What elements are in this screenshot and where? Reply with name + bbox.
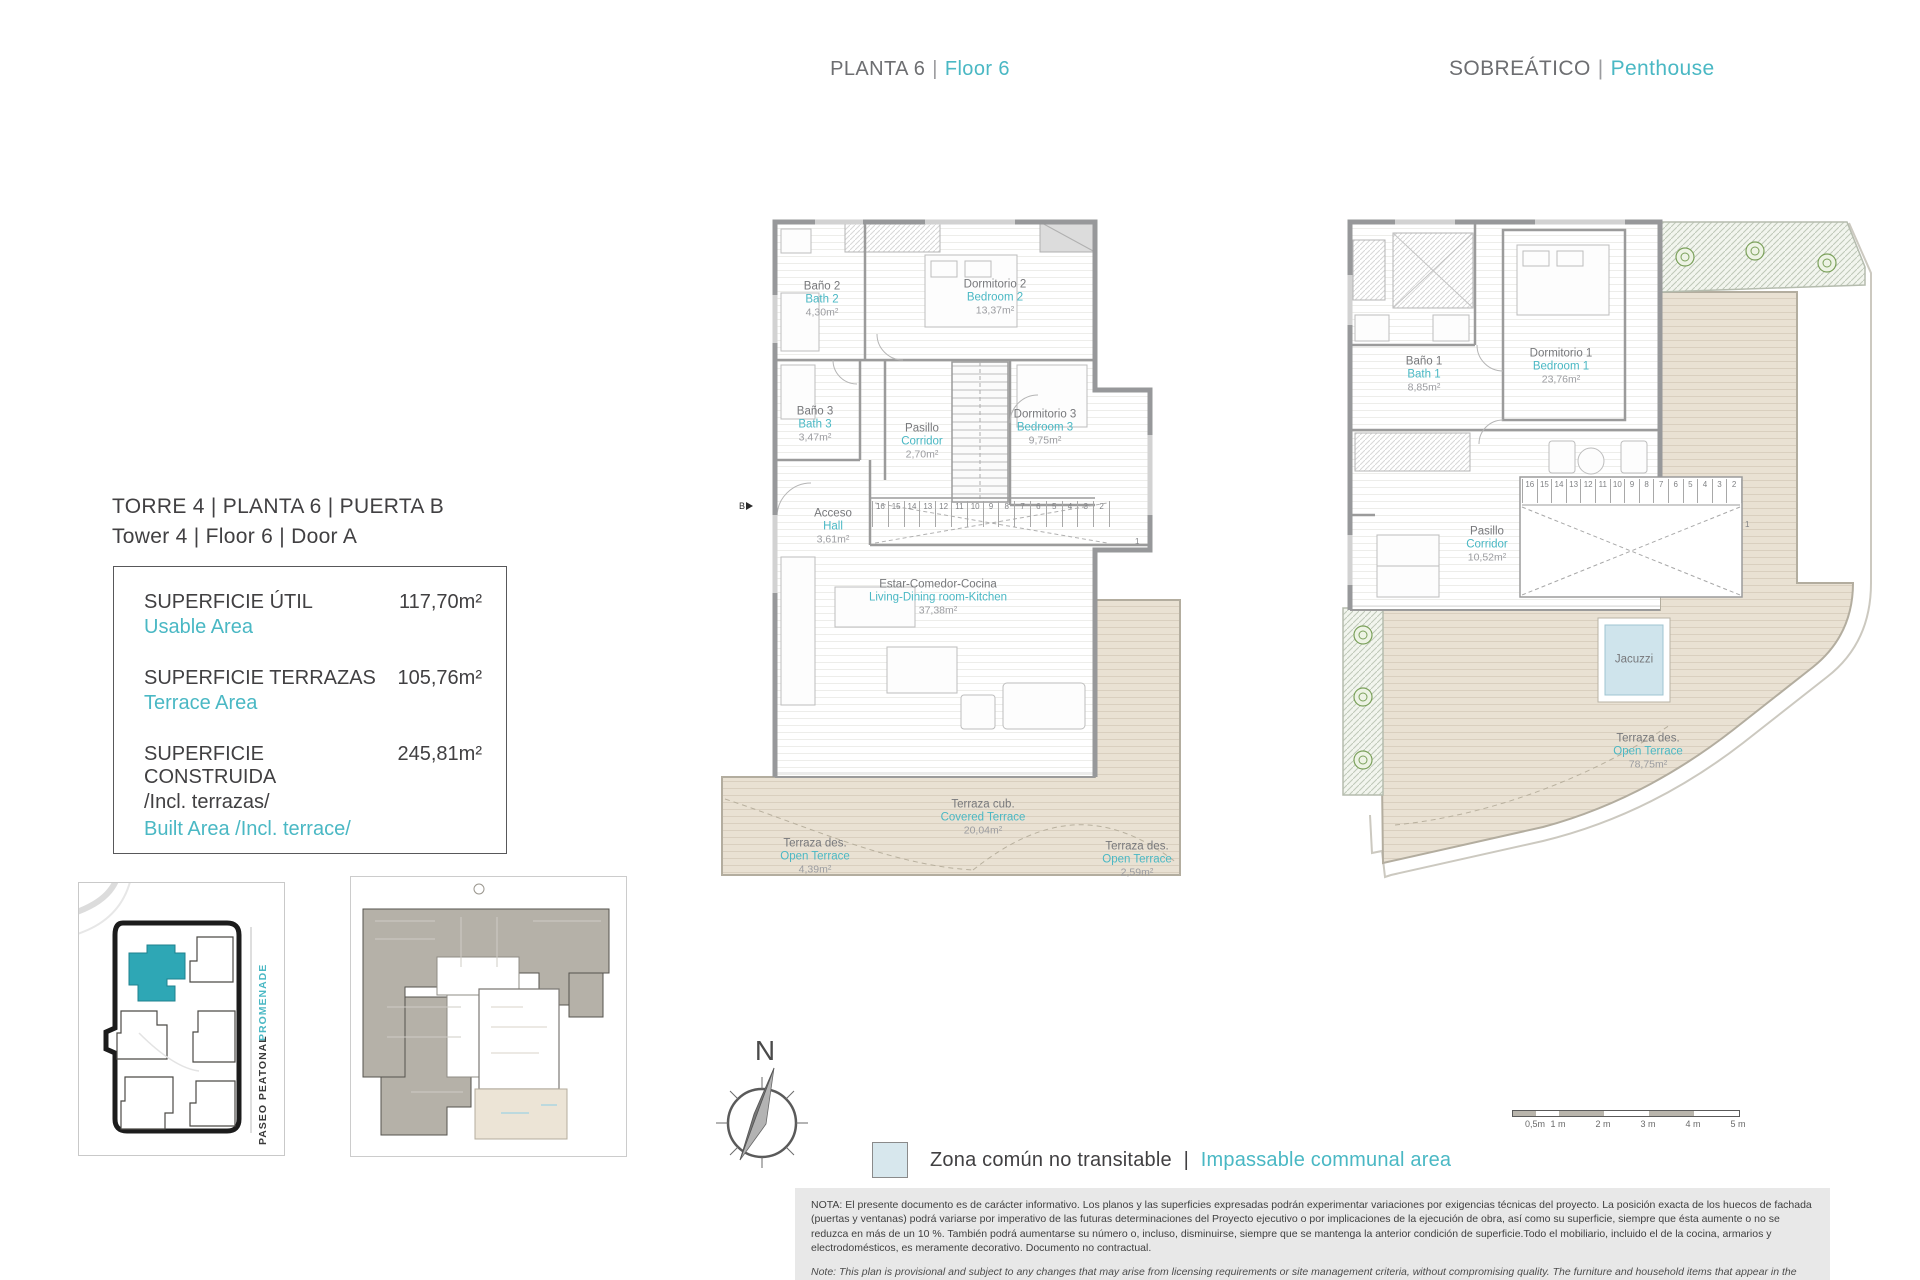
stair-number-one: 1: [1135, 537, 1139, 546]
usable-area-value: 117,70m²: [399, 591, 482, 614]
usable-area-row: SUPERFICIE ÚTIL117,70m² Usable Area: [144, 591, 482, 641]
scale-bar-segments: [1512, 1110, 1740, 1117]
legend-entry: Zona común no transitable | Impassable c…: [930, 1149, 1451, 1172]
floor6-plan-graphic: [715, 215, 1185, 887]
room-label-terrace-open-left: Terraza des.Open Terrace4,39m²: [780, 838, 849, 877]
room-label-corridor-pent: PasilloCorridor10,52m²: [1466, 526, 1508, 565]
room-label-jacuzzi: Jacuzzi: [1615, 654, 1653, 667]
room-label-bath1: Baño 1Bath 18,85m²: [1406, 356, 1442, 395]
svg-text:N: N: [755, 1035, 775, 1066]
kitchen-counter: [781, 557, 815, 705]
site-plan-thumbnail: PROMENADE PASEO PEATONAL: [78, 882, 285, 1156]
stair-numbers: 1615141312111098765432: [872, 501, 1110, 527]
floorplan-sheet: { "accent_teal": "#4ab8c4", "header": { …: [0, 0, 1920, 1280]
entry-arrow-icon: [746, 502, 753, 510]
built-area-label-es: SUPERFICIE CONSTRUIDA: [144, 743, 398, 789]
terrace-area-label-es: SUPERFICIE TERRAZAS: [144, 667, 376, 690]
entry-marker: B: [739, 501, 753, 511]
dining-table: [887, 647, 957, 693]
terrace-area-value: 105,76m²: [398, 667, 483, 690]
wardrobe-hatch: [1355, 433, 1470, 471]
unit-title-en: Tower 4 | Floor 6 | Door A: [112, 522, 444, 552]
page-title-penthouse: SOBREÁTICO|Penthouse: [1449, 57, 1715, 81]
built-area-value: 245,81m²: [398, 743, 483, 789]
title-divider-2: |: [1598, 57, 1604, 80]
area-info-box: SUPERFICIE ÚTIL117,70m² Usable Area SUPE…: [113, 566, 507, 854]
room-label-bath3: Baño 3Bath 33,47m²: [797, 406, 833, 445]
room-label-terrace-open-right: Terraza des.Open Terrace2,59m²: [1102, 841, 1171, 880]
sofa: [1003, 683, 1085, 729]
legend-label-en: Impassable communal area: [1201, 1149, 1451, 1171]
highlighted-unit: [479, 989, 559, 1089]
room-label-terrace-pent: Terraza des.Open Terrace78,75m²: [1613, 733, 1682, 772]
scale-bar: 0,5m1 m2 m3 m4 m5 m: [1512, 1110, 1740, 1131]
room-label-bed3: Dormitorio 3Bedroom 39,75m²: [1014, 409, 1077, 448]
paseo-peatonal-label: PASEO PEATONAL: [257, 1033, 269, 1145]
usable-area-label-en: Usable Area: [144, 614, 482, 641]
title-divider: |: [932, 58, 938, 80]
room-label-corridor: PasilloCorridor2,70m²: [901, 423, 943, 462]
legend-divider: |: [1184, 1149, 1189, 1171]
room-label-terrace-covered: Terraza cub.Covered Terrace20,04m²: [941, 799, 1026, 838]
unit-heading: TORRE 4 | PLANTA 6 | PUERTA B Tower 4 | …: [112, 492, 444, 552]
stair-numbers-pent: 1615141312111098765432: [1522, 479, 1742, 503]
promenade-label: PROMENADE: [257, 923, 269, 1041]
entry-marker-letter: B: [739, 501, 745, 511]
built-area-label-en: Built Area /Incl. terrace/: [144, 816, 482, 843]
legend-label-es: Zona común no transitable: [930, 1149, 1172, 1171]
penthouse-plan-graphic: [1335, 215, 1875, 887]
terrace-area-row: SUPERFICIE TERRAZAS105,76m² Terrace Area: [144, 667, 482, 717]
floor6-plan: Baño 2Bath 24,30m² Dormitorio 2Bedroom 2…: [715, 215, 1185, 887]
legend-swatch-impassable: [872, 1142, 908, 1178]
site-plan-graphic: [79, 883, 284, 1155]
note-es: NOTA: El presente documento es de caráct…: [811, 1198, 1814, 1256]
scale-bar-labels: 0,5m1 m2 m3 m4 m5 m: [1512, 1117, 1740, 1131]
disclaimer-notes: NOTA: El presente documento es de caráct…: [795, 1188, 1830, 1280]
built-area-row: SUPERFICIE CONSTRUIDA245,81m² /Incl. ter…: [144, 743, 482, 843]
page-title-floor6: PLANTA 6|Floor 6: [830, 58, 1010, 81]
stair-number-one-pent: 1: [1745, 520, 1749, 529]
floorplate-key-thumbnail: [350, 876, 627, 1157]
compass-icon: N: [710, 1028, 820, 1168]
title-floor6-es: PLANTA 6: [830, 58, 925, 80]
note-en: Note: This plan is provisional and subje…: [811, 1265, 1814, 1280]
floorplate-key-graphic: [351, 877, 626, 1156]
terrace-area-label-en: Terrace Area: [144, 690, 482, 717]
room-label-bed2: Dormitorio 2Bedroom 213,37m²: [964, 279, 1027, 318]
title-floor6-en: Floor 6: [945, 58, 1010, 80]
compass-rose: N: [710, 1028, 820, 1168]
title-penthouse-en: Penthouse: [1611, 57, 1715, 80]
room-label-bed1: Dormitorio 1Bedroom 123,76m²: [1530, 348, 1593, 387]
built-area-label-es2: /Incl. terrazas/: [144, 789, 482, 816]
room-label-living: Estar-Comedor-CocinaLiving-Dining room-K…: [869, 579, 1007, 618]
usable-area-label-es: SUPERFICIE ÚTIL: [144, 591, 313, 614]
title-penthouse-es: SOBREÁTICO: [1449, 57, 1591, 80]
room-label-bath2: Baño 2Bath 24,30m²: [804, 281, 840, 320]
unit-title-es: TORRE 4 | PLANTA 6 | PUERTA B: [112, 492, 444, 522]
penthouse-plan: Baño 1Bath 18,85m² Dormitorio 1Bedroom 1…: [1335, 215, 1875, 887]
wardrobe-hatch: [845, 222, 940, 252]
room-label-hall: AccesoHall3,61m²: [814, 508, 852, 547]
